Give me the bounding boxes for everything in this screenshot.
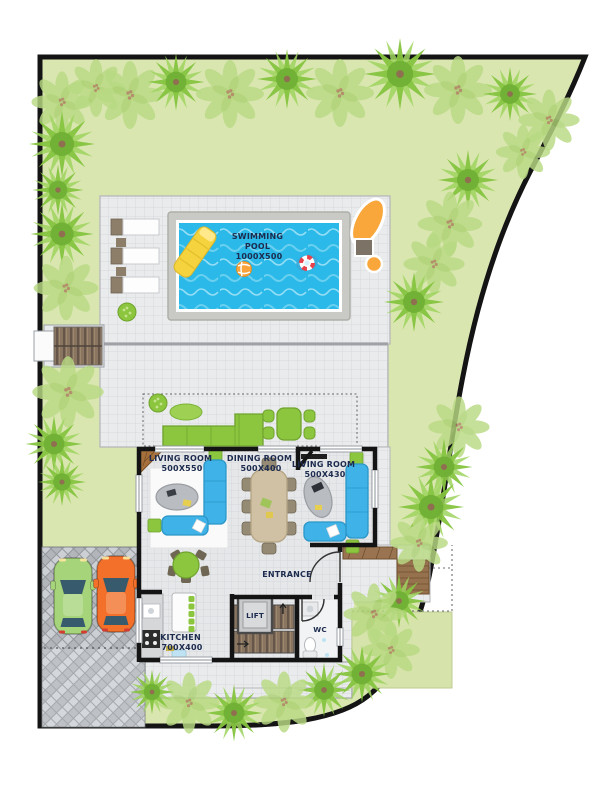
pool-table <box>355 239 373 256</box>
outdoor-chair <box>263 427 274 439</box>
lift-label: LIFT <box>246 611 264 620</box>
leafy-tree-icon <box>496 125 550 179</box>
leafy-tree-icon <box>158 672 219 733</box>
beach-ball-icon <box>237 262 252 277</box>
side-table-green <box>148 519 161 532</box>
side-table <box>116 267 126 276</box>
swimming-pool <box>168 212 350 320</box>
sun-lounger <box>111 277 159 293</box>
sun-lounger <box>111 248 159 264</box>
site-plan: SWIMMING POOL 1000X500 LIVING ROOM 500X5… <box>0 0 600 800</box>
leafy-tree-icon <box>424 56 492 124</box>
coffee-table <box>156 484 198 510</box>
outdoor-chair <box>304 427 315 439</box>
side-table <box>116 238 126 247</box>
outdoor-chair <box>304 410 315 422</box>
site-plan-svg: SWIMMING POOL 1000X500 LIVING ROOM 500X5… <box>0 0 600 800</box>
table-item <box>315 505 322 510</box>
sofa-blue <box>304 522 346 541</box>
green-car-icon <box>51 558 96 634</box>
orange-pouf-icon <box>366 256 382 272</box>
wc-label: WC <box>313 625 327 634</box>
table-item <box>266 512 273 518</box>
leafy-tree-icon <box>306 59 374 127</box>
outdoor-dining-table <box>277 408 301 440</box>
leafy-tree-icon <box>32 356 103 427</box>
leafy-tree-icon <box>196 60 264 128</box>
leafy-tree-icon <box>34 256 99 321</box>
driveway <box>42 547 145 727</box>
orange-car-icon <box>94 556 139 632</box>
outdoor-oval-table <box>170 404 202 420</box>
leafy-tree-icon <box>96 61 164 129</box>
kitchen-label: KITCHEN 700X400 <box>160 633 204 652</box>
stove <box>142 630 160 648</box>
kitchen-counter <box>141 594 163 658</box>
leafy-tree-icon <box>253 671 314 732</box>
entrance-label: ENTRANCE <box>262 570 312 579</box>
outdoor-chair <box>263 410 274 422</box>
toilet <box>305 638 316 653</box>
sofa-blue <box>346 464 368 538</box>
sun-lounger <box>111 219 159 235</box>
leafy-tree-icon <box>390 514 448 572</box>
bush-icon <box>149 394 167 412</box>
sofa-blue <box>204 460 226 524</box>
bush-icon <box>118 303 136 321</box>
